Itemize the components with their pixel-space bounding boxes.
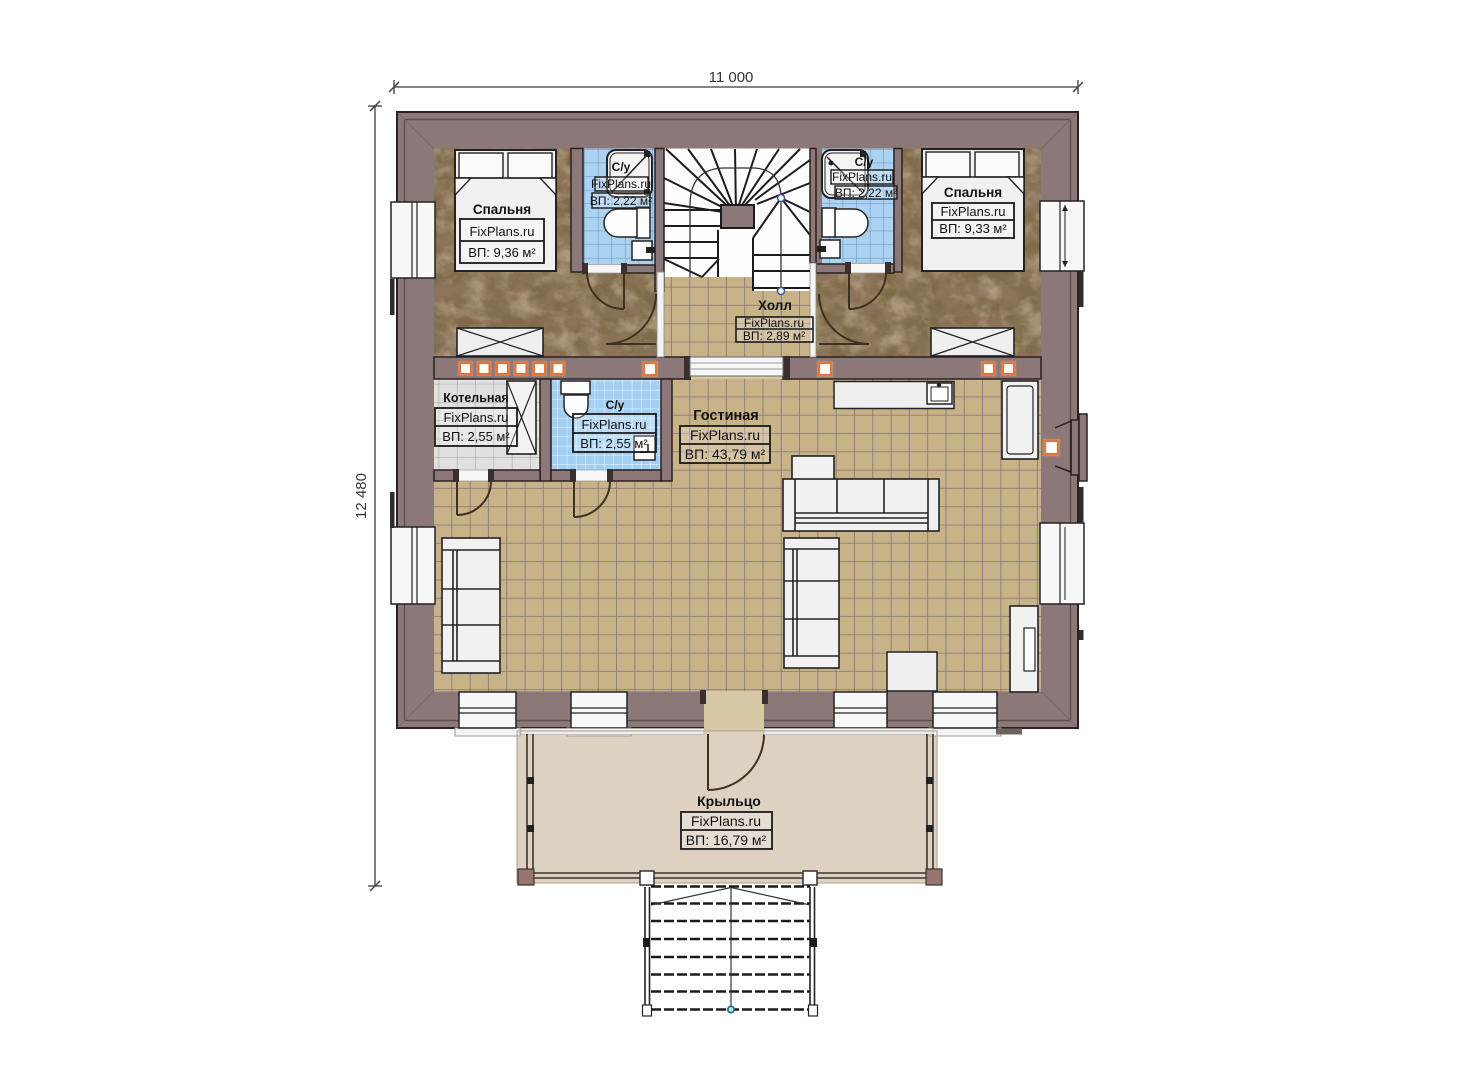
svg-text:ВП: 2,55 м²: ВП: 2,55 м² [442, 429, 510, 444]
svg-text:ВП: 2,22 м²: ВП: 2,22 м² [590, 194, 652, 208]
svg-text:12 480: 12 480 [353, 473, 370, 519]
svg-text:FixPlans.ru: FixPlans.ru [940, 204, 1005, 219]
svg-text:FixPlans.ru: FixPlans.ru [469, 224, 534, 239]
svg-text:Котельная: Котельная [443, 391, 508, 405]
svg-text:ВП: 2,55 м²: ВП: 2,55 м² [580, 436, 648, 451]
svg-text:FixPlans.ru: FixPlans.ru [691, 813, 761, 829]
svg-text:FixPlans.ru: FixPlans.ru [832, 170, 892, 184]
svg-text:FixPlans.ru: FixPlans.ru [443, 410, 508, 425]
svg-text:ВП: 9,36 м²: ВП: 9,36 м² [468, 245, 536, 260]
svg-text:ВП: 2,89 м²: ВП: 2,89 м² [743, 329, 805, 343]
svg-text:ВП: 16,79 м²: ВП: 16,79 м² [686, 832, 767, 848]
svg-text:FixPlans.ru: FixPlans.ru [591, 177, 651, 191]
svg-text:FixPlans.ru: FixPlans.ru [690, 427, 760, 443]
svg-text:Крыльцо: Крыльцо [697, 793, 761, 809]
svg-text:FixPlans.ru: FixPlans.ru [744, 316, 804, 330]
svg-text:С/у: С/у [855, 155, 874, 169]
svg-text:11 000: 11 000 [709, 69, 754, 86]
svg-text:Гостиная: Гостиная [693, 408, 759, 424]
svg-text:С/у: С/у [606, 398, 625, 412]
svg-text:ВП: 43,79 м²: ВП: 43,79 м² [685, 446, 766, 462]
svg-text:FixPlans.ru: FixPlans.ru [581, 417, 646, 432]
svg-text:ВП: 2,22 м²: ВП: 2,22 м² [835, 186, 897, 200]
svg-text:Спальня: Спальня [473, 202, 531, 217]
svg-text:Спальня: Спальня [944, 185, 1002, 200]
svg-text:С/у: С/у [612, 160, 631, 174]
svg-text:ВП: 9,33 м²: ВП: 9,33 м² [939, 221, 1007, 236]
svg-text:Холл: Холл [758, 298, 792, 313]
